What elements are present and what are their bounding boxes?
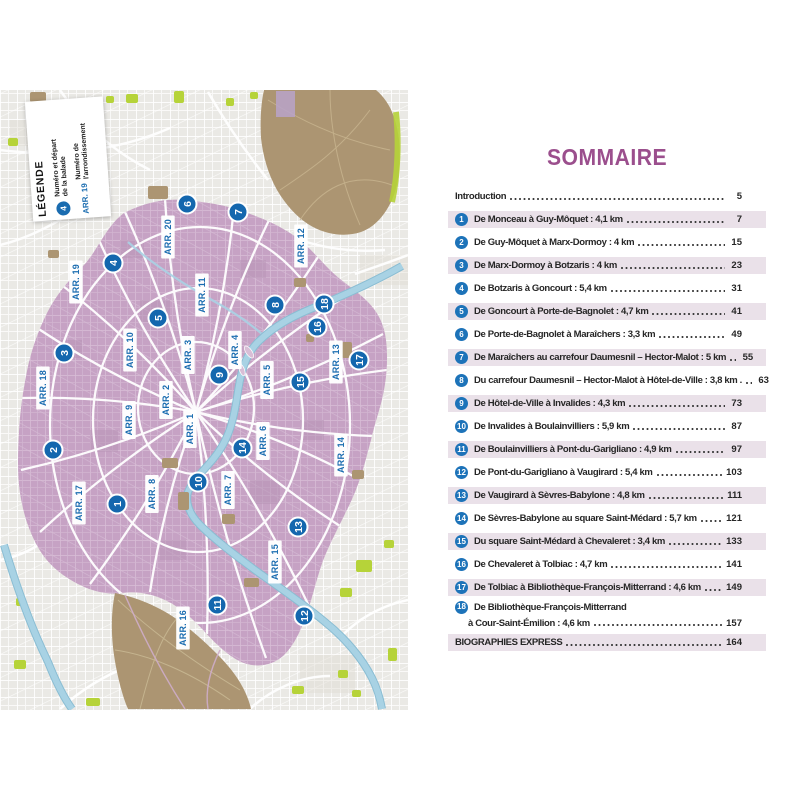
svg-text:ARR. 3: ARR. 3 <box>183 340 193 371</box>
toc-page-number: 87 <box>728 421 742 432</box>
toc-entry-title: Du square Saint-Médard à Chevaleret : 3,… <box>474 536 665 547</box>
toc-entry-number: 6 <box>455 328 468 341</box>
route-marker: 15 <box>291 373 310 392</box>
dot-leader <box>638 244 725 246</box>
arrondissement-label: ARR. 4 <box>228 331 242 369</box>
dot-leader <box>649 497 725 499</box>
dot-leader <box>676 451 725 453</box>
arrondissement-label: ARR. 14 <box>334 434 348 477</box>
route-marker: 5 <box>149 309 168 328</box>
legend-marker-label-line2: de la balade <box>60 156 70 196</box>
toc-entry-title: De Boulainvilliers à Pont-du-Garigliano … <box>474 444 672 455</box>
toc-page-number: 133 <box>726 536 742 547</box>
toc-page-number: 121 <box>726 513 742 524</box>
svg-text:ARR. 13: ARR. 13 <box>331 344 341 380</box>
route-marker: 12 <box>295 607 314 626</box>
toc-page-number: 7 <box>728 214 742 225</box>
toc-entry-number: 16 <box>455 558 468 571</box>
toc-entry-title: BIOGRAPHIES EXPRESS <box>455 637 562 648</box>
svg-text:ARR. 9: ARR. 9 <box>124 405 134 436</box>
dot-leader <box>611 566 723 568</box>
toc-entry-line1: 18De Bibliothèque-François-Mitterrand <box>448 599 766 615</box>
dot-leader <box>629 405 725 407</box>
toc-entry: 13De Vaugirard à Sèvres-Babylone : 4,8 k… <box>448 484 766 507</box>
dot-leader <box>627 221 725 223</box>
toc-entry-title: De Goncourt à Porte-de-Bagnolet : 4,7 km <box>474 306 648 317</box>
toc-entry: 1De Monceau à Guy-Môquet : 4,1 km7 <box>448 208 766 231</box>
svg-text:17: 17 <box>354 354 366 366</box>
toc-entry-number: 13 <box>455 489 468 502</box>
toc-entry-number: 4 <box>455 282 468 295</box>
svg-text:5: 5 <box>153 315 165 321</box>
toc-entry-number: 9 <box>455 397 468 410</box>
arrondissement-label: ARR. 3 <box>181 336 195 374</box>
toc-entry: 17De Tolbiac à Bibliothèque-François-Mit… <box>448 576 766 599</box>
toc-entry-title: Du carrefour Daumesnil – Hector-Malot à … <box>474 375 742 386</box>
svg-text:7: 7 <box>233 209 245 215</box>
svg-text:3: 3 <box>59 350 71 356</box>
toc-entry-title: De Botzaris à Goncourt : 5,4 km <box>474 283 607 294</box>
toc-entry-title: De Marx-Dormoy à Botzaris : 4 km <box>474 260 617 271</box>
toc-entry-title: De Guy-Môquet à Marx-Dormoy : 4 km <box>474 237 634 248</box>
svg-text:ARR. 10: ARR. 10 <box>125 332 135 368</box>
toc-entry: 16De Chevaleret à Tolbiac : 4,7 km141 <box>448 553 766 576</box>
toc-page-number: 15 <box>728 237 742 248</box>
toc-entry-number: 17 <box>455 581 468 594</box>
legend-marker-label-line1: Numéro et départ <box>51 139 62 197</box>
toc-entry-number: 8 <box>455 374 468 387</box>
svg-text:16: 16 <box>312 321 324 333</box>
toc-entry: 10De Invalides à Boulainvilliers : 5,9 k… <box>448 415 766 438</box>
dot-leader <box>657 474 724 476</box>
toc-section-row: Introduction5 <box>448 185 766 208</box>
toc-entry-number: 3 <box>455 259 468 272</box>
arrondissement-label: ARR. 16 <box>176 607 190 650</box>
toc-entry: 18De Bibliothèque-François-Mitterrandà C… <box>448 599 766 631</box>
toc-page-number: 49 <box>728 329 742 340</box>
toc-entry-number: 10 <box>455 420 468 433</box>
svg-text:12: 12 <box>299 610 311 622</box>
svg-text:ARR. 8: ARR. 8 <box>147 479 157 510</box>
route-marker: 14 <box>233 439 252 458</box>
toc-entry: 9De Hôtel-de-Ville à Invalides : 4,3 km7… <box>448 392 766 415</box>
toc-page-number: 141 <box>726 559 742 570</box>
svg-text:2: 2 <box>48 447 60 453</box>
svg-text:9: 9 <box>214 372 226 378</box>
toc-entry-number: 14 <box>455 512 468 525</box>
svg-text:ARR. 4: ARR. 4 <box>230 335 240 366</box>
book-spread: ARR. 20ARR. 19ARR. 12ARR. 11ARR. 10ARR. … <box>0 0 800 800</box>
route-marker: 18 <box>315 295 334 314</box>
arrondissement-label: ARR. 19 <box>69 261 83 304</box>
route-marker: 6 <box>178 195 197 214</box>
toc-page-number: 73 <box>728 398 742 409</box>
dot-leader <box>730 359 736 361</box>
toc-page-number: 157 <box>726 618 742 629</box>
route-marker: 9 <box>210 366 229 385</box>
dot-leader <box>611 290 725 292</box>
toc-page-number: 111 <box>727 490 742 501</box>
toc-entry: 14De Sèvres-Babylone au square Saint-Méd… <box>448 507 766 530</box>
legend-title: LÉGENDE <box>29 103 49 218</box>
arrondissement-label: ARR. 5 <box>260 361 274 399</box>
toc-entry-title: De Pont-du-Garigliano à Vaugirard : 5,4 … <box>474 467 653 478</box>
toc-page-number: 164 <box>726 637 742 648</box>
toc-entry-number: 15 <box>455 535 468 548</box>
svg-text:ARR. 15: ARR. 15 <box>270 544 280 580</box>
dot-leader <box>669 543 723 545</box>
toc-entry-number: 12 <box>455 466 468 479</box>
dot-leader <box>659 336 725 338</box>
svg-text:10: 10 <box>193 476 205 488</box>
toc-entry: 15Du square Saint-Médard à Chevaleret : … <box>448 530 766 553</box>
svg-text:ARR. 14: ARR. 14 <box>336 437 346 473</box>
dot-leader <box>621 267 725 269</box>
route-marker: 13 <box>289 518 308 537</box>
toc-entry-title: Introduction <box>455 191 506 202</box>
arrondissement-label-icon: ARR. 19 <box>79 183 90 214</box>
toc-entry-number: 7 <box>455 351 468 364</box>
toc-entry-number: 1 <box>455 213 468 226</box>
svg-text:8: 8 <box>270 302 282 308</box>
table-of-contents: Introduction51De Monceau à Guy-Môquet : … <box>448 185 766 654</box>
route-marker: 4 <box>104 254 123 273</box>
toc-entry-title: De Sèvres-Babylone au square Saint-Médar… <box>474 513 697 524</box>
toc-entry: 8Du carrefour Daumesnil – Hector-Malot à… <box>448 369 766 392</box>
svg-text:ARR. 5: ARR. 5 <box>262 365 272 396</box>
toc-page-number: 41 <box>728 306 742 317</box>
toc-page-number: 23 <box>728 260 742 271</box>
toc-page-number: 97 <box>728 444 742 455</box>
svg-text:ARR. 2: ARR. 2 <box>161 385 171 416</box>
route-marker: 16 <box>308 318 327 337</box>
map-legend: LÉGENDE 4 Numéro et départ de la balade … <box>25 96 111 221</box>
arrondissement-label: ARR. 18 <box>36 367 50 410</box>
toc-page-number: 103 <box>726 467 742 478</box>
route-marker: 17 <box>350 351 369 370</box>
arrondissement-label: ARR. 11 <box>195 274 209 317</box>
toc-entry-title: De Invalides à Boulainvilliers : 5,9 km <box>474 421 629 432</box>
svg-text:15: 15 <box>295 376 307 388</box>
toc-page-number: 55 <box>739 352 753 363</box>
svg-text:1: 1 <box>112 501 124 507</box>
dot-leader <box>705 589 723 591</box>
route-marker: 1 <box>108 495 127 514</box>
legend-row-marker: 4 Numéro et départ de la balade <box>48 101 73 216</box>
arrondissement-label: ARR. 10 <box>123 329 137 372</box>
svg-text:11: 11 <box>212 599 224 610</box>
toc-entry: 3De Marx-Dormoy à Botzaris : 4 km23 <box>448 254 766 277</box>
page-title: SOMMAIRE <box>461 144 754 171</box>
route-marker: 10 <box>189 473 208 492</box>
route-marker: 8 <box>266 296 285 315</box>
arrondissement-label: ARR. 17 <box>72 482 86 525</box>
toc-entry-line2: à Cour-Saint-Émilion : 4,6 km157 <box>448 615 766 631</box>
toc-entry: 6De Porte-de-Bagnolet à Maraîchers : 3,3… <box>448 323 766 346</box>
svg-text:ARR. 18: ARR. 18 <box>38 370 48 406</box>
arrondissement-label: ARR. 15 <box>268 541 282 584</box>
toc-entry-title: De Maraîchers au carrefour Daumesnil – H… <box>474 352 726 363</box>
route-marker: 2 <box>44 441 63 460</box>
arrondissement-label: ARR. 20 <box>161 216 175 259</box>
toc-entry-title: à Cour-Saint-Émilion : 4,6 km <box>468 618 590 629</box>
arrondissement-label: ARR. 7 <box>221 471 235 509</box>
toc-entry-number: 5 <box>455 305 468 318</box>
svg-text:4: 4 <box>108 260 120 266</box>
toc-page-number: 31 <box>728 283 742 294</box>
dot-leader <box>652 313 725 315</box>
svg-text:18: 18 <box>319 298 331 310</box>
svg-text:ARR. 1: ARR. 1 <box>185 414 195 445</box>
toc-entry-title: De Bibliothèque-François-Mitterrand <box>474 602 626 613</box>
arrondissement-label: ARR. 12 <box>294 225 308 268</box>
svg-text:ARR. 20: ARR. 20 <box>163 219 173 255</box>
svg-text:ARR. 12: ARR. 12 <box>296 228 306 264</box>
route-marker-icon: 4 <box>56 201 71 216</box>
arrondissement-label: ARR. 2 <box>159 381 173 419</box>
dot-leader <box>746 382 752 384</box>
toc-entry-title: De Porte-de-Bagnolet à Maraîchers : 3,3 … <box>474 329 655 340</box>
toc-entry-number: 2 <box>455 236 468 249</box>
svg-text:14: 14 <box>237 442 249 454</box>
arrondissement-label: ARR. 9 <box>122 401 136 439</box>
arrondissement-label: ARR. 8 <box>145 475 159 513</box>
legend-row-arrondissement: ARR. 19 Numéro de l'arrondissement <box>70 100 95 215</box>
toc-entry: 7De Maraîchers au carrefour Daumesnil – … <box>448 346 766 369</box>
toc-entry-title: De Chevaleret à Tolbiac : 4,7 km <box>474 559 607 570</box>
toc-section-row: BIOGRAPHIES EXPRESS164 <box>448 631 766 654</box>
dot-leader <box>633 428 725 430</box>
dot-leader <box>701 520 723 522</box>
svg-text:ARR. 17: ARR. 17 <box>74 485 84 521</box>
dot-leader <box>510 198 725 200</box>
arrondissement-label: ARR. 13 <box>329 341 343 384</box>
toc-entry: 5De Goncourt à Porte-de-Bagnolet : 4,7 k… <box>448 300 766 323</box>
toc-entry-title: De Hôtel-de-Ville à Invalides : 4,3 km <box>474 398 625 409</box>
svg-text:ARR. 6: ARR. 6 <box>258 426 268 457</box>
toc-entry-title: De Vaugirard à Sèvres-Babylone : 4,8 km <box>474 490 645 501</box>
route-marker: 7 <box>229 203 248 222</box>
toc-entry: 2De Guy-Môquet à Marx-Dormoy : 4 km15 <box>448 231 766 254</box>
toc-page-number: 63 <box>755 375 769 386</box>
toc-entry: 11De Boulainvilliers à Pont-du-Gariglian… <box>448 438 766 461</box>
svg-text:ARR. 16: ARR. 16 <box>178 610 188 646</box>
toc-entry: 4De Botzaris à Goncourt : 5,4 km31 <box>448 277 766 300</box>
route-marker: 3 <box>55 344 74 363</box>
toc-page-number: 5 <box>728 191 742 202</box>
toc-entry-number: 18 <box>455 601 468 614</box>
route-marker: 11 <box>208 596 227 615</box>
dot-leader <box>594 624 723 626</box>
svg-text:ARR. 7: ARR. 7 <box>223 475 233 506</box>
arrondissement-label: ARR. 6 <box>256 422 270 460</box>
toc-entry-title: De Monceau à Guy-Môquet : 4,1 km <box>474 214 623 225</box>
arrondissement-label: ARR. 1 <box>183 410 197 448</box>
toc-entry-title: De Tolbiac à Bibliothèque-François-Mitte… <box>474 582 701 593</box>
toc-entry-number: 11 <box>455 443 468 456</box>
dot-leader <box>566 644 723 646</box>
svg-text:ARR. 11: ARR. 11 <box>197 277 207 312</box>
svg-text:ARR. 19: ARR. 19 <box>71 264 81 300</box>
svg-text:6: 6 <box>182 201 194 207</box>
svg-text:13: 13 <box>293 521 305 533</box>
toc-page-number: 149 <box>726 582 742 593</box>
toc-entry: 12De Pont-du-Garigliano à Vaugirard : 5,… <box>448 461 766 484</box>
